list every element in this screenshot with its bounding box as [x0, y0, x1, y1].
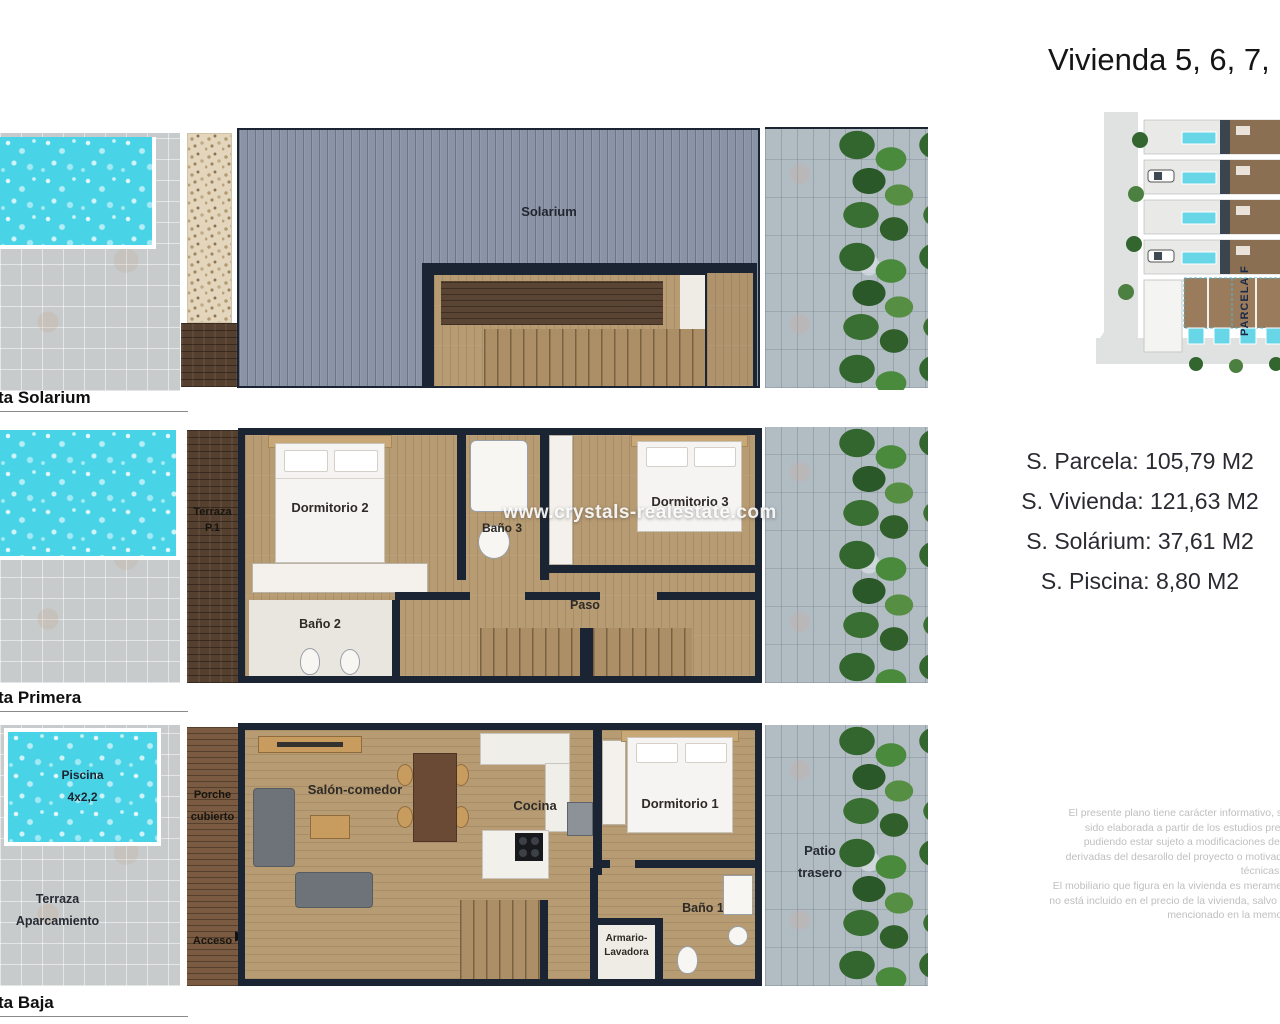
parcela-units: [1184, 278, 1280, 344]
sofa: [295, 872, 373, 908]
wall: [635, 860, 755, 868]
house-row: [1144, 200, 1280, 234]
wardrobe: [602, 740, 626, 825]
stove: [515, 833, 543, 861]
room-label-armario-2: Lavadora: [598, 947, 655, 960]
floorplan-sheet: Solarium ta Solarium Terraza P.1: [0, 0, 1280, 1024]
room-label-piscina-2: 4x2,2: [8, 790, 157, 805]
dining-table: [413, 753, 457, 842]
plan-caption-solarium: ta Solarium: [0, 388, 188, 412]
interior-primera: Dormitorio 2 Baño 3 Dormitorio 3: [238, 428, 762, 683]
piscina: Piscina 4x2,2: [4, 728, 161, 846]
spec-piscina: S. Piscina: 8,80 M2: [1000, 568, 1280, 595]
car-icon: [1148, 170, 1174, 182]
wall: [549, 565, 755, 573]
shower: [723, 875, 753, 915]
disclaimer-line: mencionado en la memori: [1049, 908, 1280, 923]
room-label-porche-2: cubierto: [183, 811, 242, 825]
pool: [0, 137, 156, 249]
pillow: [334, 450, 378, 472]
area-specs: S. Parcela: 105,79 M2 S. Vivienda: 121,6…: [1000, 448, 1280, 608]
stair-divider: [540, 900, 548, 979]
tv-sideboard: [258, 736, 362, 753]
plan-caption-baja: ta Baja: [0, 993, 188, 1017]
pillow: [284, 450, 328, 472]
pillow: [636, 743, 678, 763]
trees-texture: [839, 427, 928, 683]
disclaimer: El presente plano tiene carácter informa…: [1049, 806, 1280, 923]
burner: [531, 837, 539, 845]
plan-caption-primera: ta Primera: [0, 688, 188, 712]
trees-texture: [839, 725, 928, 986]
duvet-line: [276, 478, 384, 479]
trees-texture: [839, 129, 928, 390]
car-icon: [1148, 250, 1174, 262]
street-vertical: [1104, 112, 1138, 332]
burner: [531, 849, 539, 857]
pool: [0, 430, 180, 560]
spec-solarium: S. Solárium: 37,61 M2: [1000, 528, 1280, 555]
toilet: [677, 946, 698, 974]
room-label-porche: Porche: [187, 789, 238, 803]
page-title: Vivienda 5, 6, 7,: [1048, 42, 1270, 78]
stair-divider: [580, 628, 593, 676]
room-label-terraza-aparcamiento: Terraza: [0, 892, 115, 908]
roof-stairs: [484, 329, 705, 386]
stairs-flight: [593, 628, 692, 676]
parcela-label: PARCELA F: [1239, 265, 1251, 336]
wall: [655, 920, 663, 979]
room-label-paso: Paso: [545, 598, 625, 614]
bidet: [340, 649, 360, 675]
chair: [397, 806, 413, 828]
wall: [590, 918, 663, 925]
wall: [457, 435, 466, 580]
room-label-piscina: Piscina: [8, 768, 157, 783]
kitchen-counter: [480, 733, 570, 765]
room-label-bano2: Baño 2: [275, 617, 365, 633]
pillow: [694, 447, 736, 467]
side-patio-top: [765, 127, 928, 388]
room-label-terraza-p1-2: P.1: [187, 522, 238, 536]
dark-deck: [181, 323, 237, 387]
stairwell-bench: [441, 281, 663, 325]
roof-stairwell: [422, 263, 757, 388]
coffee-table: [310, 815, 350, 839]
watermark: www.crystals-realestate.com: [500, 502, 780, 524]
burner: [519, 837, 527, 845]
wardrobe: [549, 435, 573, 565]
wall: [593, 860, 610, 868]
disclaimer-line: derivadas del desarollo del proyecto o m…: [1049, 850, 1280, 865]
room-label-cocina: Cocina: [480, 798, 590, 814]
disclaimer-line: El presente plano tiene carácter informa…: [1049, 806, 1280, 821]
disclaimer-line: pudiendo estar sujeto a modificaciones d…: [1049, 835, 1280, 850]
patio-trasero: Patio trasero: [765, 725, 928, 986]
house-row: [1144, 240, 1280, 274]
washbasin: [728, 926, 748, 946]
site-plan-thumbnail: PARCELA F: [1096, 112, 1280, 376]
stairwell-column: [707, 273, 753, 386]
room-label-dormitorio2: Dormitorio 2: [270, 500, 390, 516]
pillow: [646, 447, 688, 467]
spec-parcela: S. Parcela: 105,79 M2: [1000, 448, 1280, 475]
room-label-terraza-p1: Terraza: [187, 506, 238, 520]
disclaimer-line: no está incluido en el precio de la vivi…: [1049, 894, 1280, 909]
house-row: [1144, 160, 1280, 194]
wardrobe: [252, 563, 428, 593]
stairs-flight: [460, 900, 540, 979]
bed-dormitorio1: [627, 737, 733, 833]
plan-primera: Terraza P.1 Dormitorio 2: [0, 425, 930, 683]
burner: [519, 849, 527, 857]
spec-vivienda: S. Vivienda: 121,63 M2: [1000, 488, 1280, 515]
house-row: [1144, 120, 1280, 154]
armario-room: Armario- Lavadora: [598, 925, 655, 979]
plan-solarium: Solarium: [0, 125, 930, 391]
side-patio-middle: [765, 427, 928, 683]
room-label-dormitorio1: Dormitorio 1: [625, 796, 735, 812]
room-label-terraza-aparcamiento-2: Aparcamiento: [0, 914, 120, 930]
white-building: [1144, 280, 1182, 352]
room-label-armario: Armario-: [598, 933, 655, 946]
sofa: [253, 788, 295, 867]
disclaimer-line: técnicas d: [1049, 864, 1280, 879]
tv: [277, 742, 343, 747]
stairwell-white-strip: [680, 275, 705, 330]
porche-deck: Porche cubierto Acceso: [187, 727, 238, 986]
wall: [395, 592, 470, 600]
wall: [392, 600, 400, 676]
interior-baja: Salón-comedor Cocina: [238, 723, 762, 986]
room-label-acceso: Acceso: [185, 935, 240, 949]
wall: [593, 730, 602, 875]
terraza-p1-deck: Terraza P.1: [187, 430, 238, 683]
wall: [657, 592, 755, 600]
plan-baja: Piscina 4x2,2 Terraza Aparcamiento Porch…: [0, 720, 930, 986]
stairs-flight: [480, 628, 580, 676]
chair: [397, 764, 413, 786]
room-label-solarium: Solarium: [509, 204, 589, 220]
pillow: [685, 743, 727, 763]
bano2-floor: [249, 600, 392, 676]
toilet: [300, 648, 320, 675]
gravel-strip: [187, 133, 232, 323]
disclaimer-line: sido elaborada a partir de los estudios …: [1049, 821, 1280, 836]
disclaimer-line: El mobiliario que figura en la vivienda …: [1049, 879, 1280, 894]
